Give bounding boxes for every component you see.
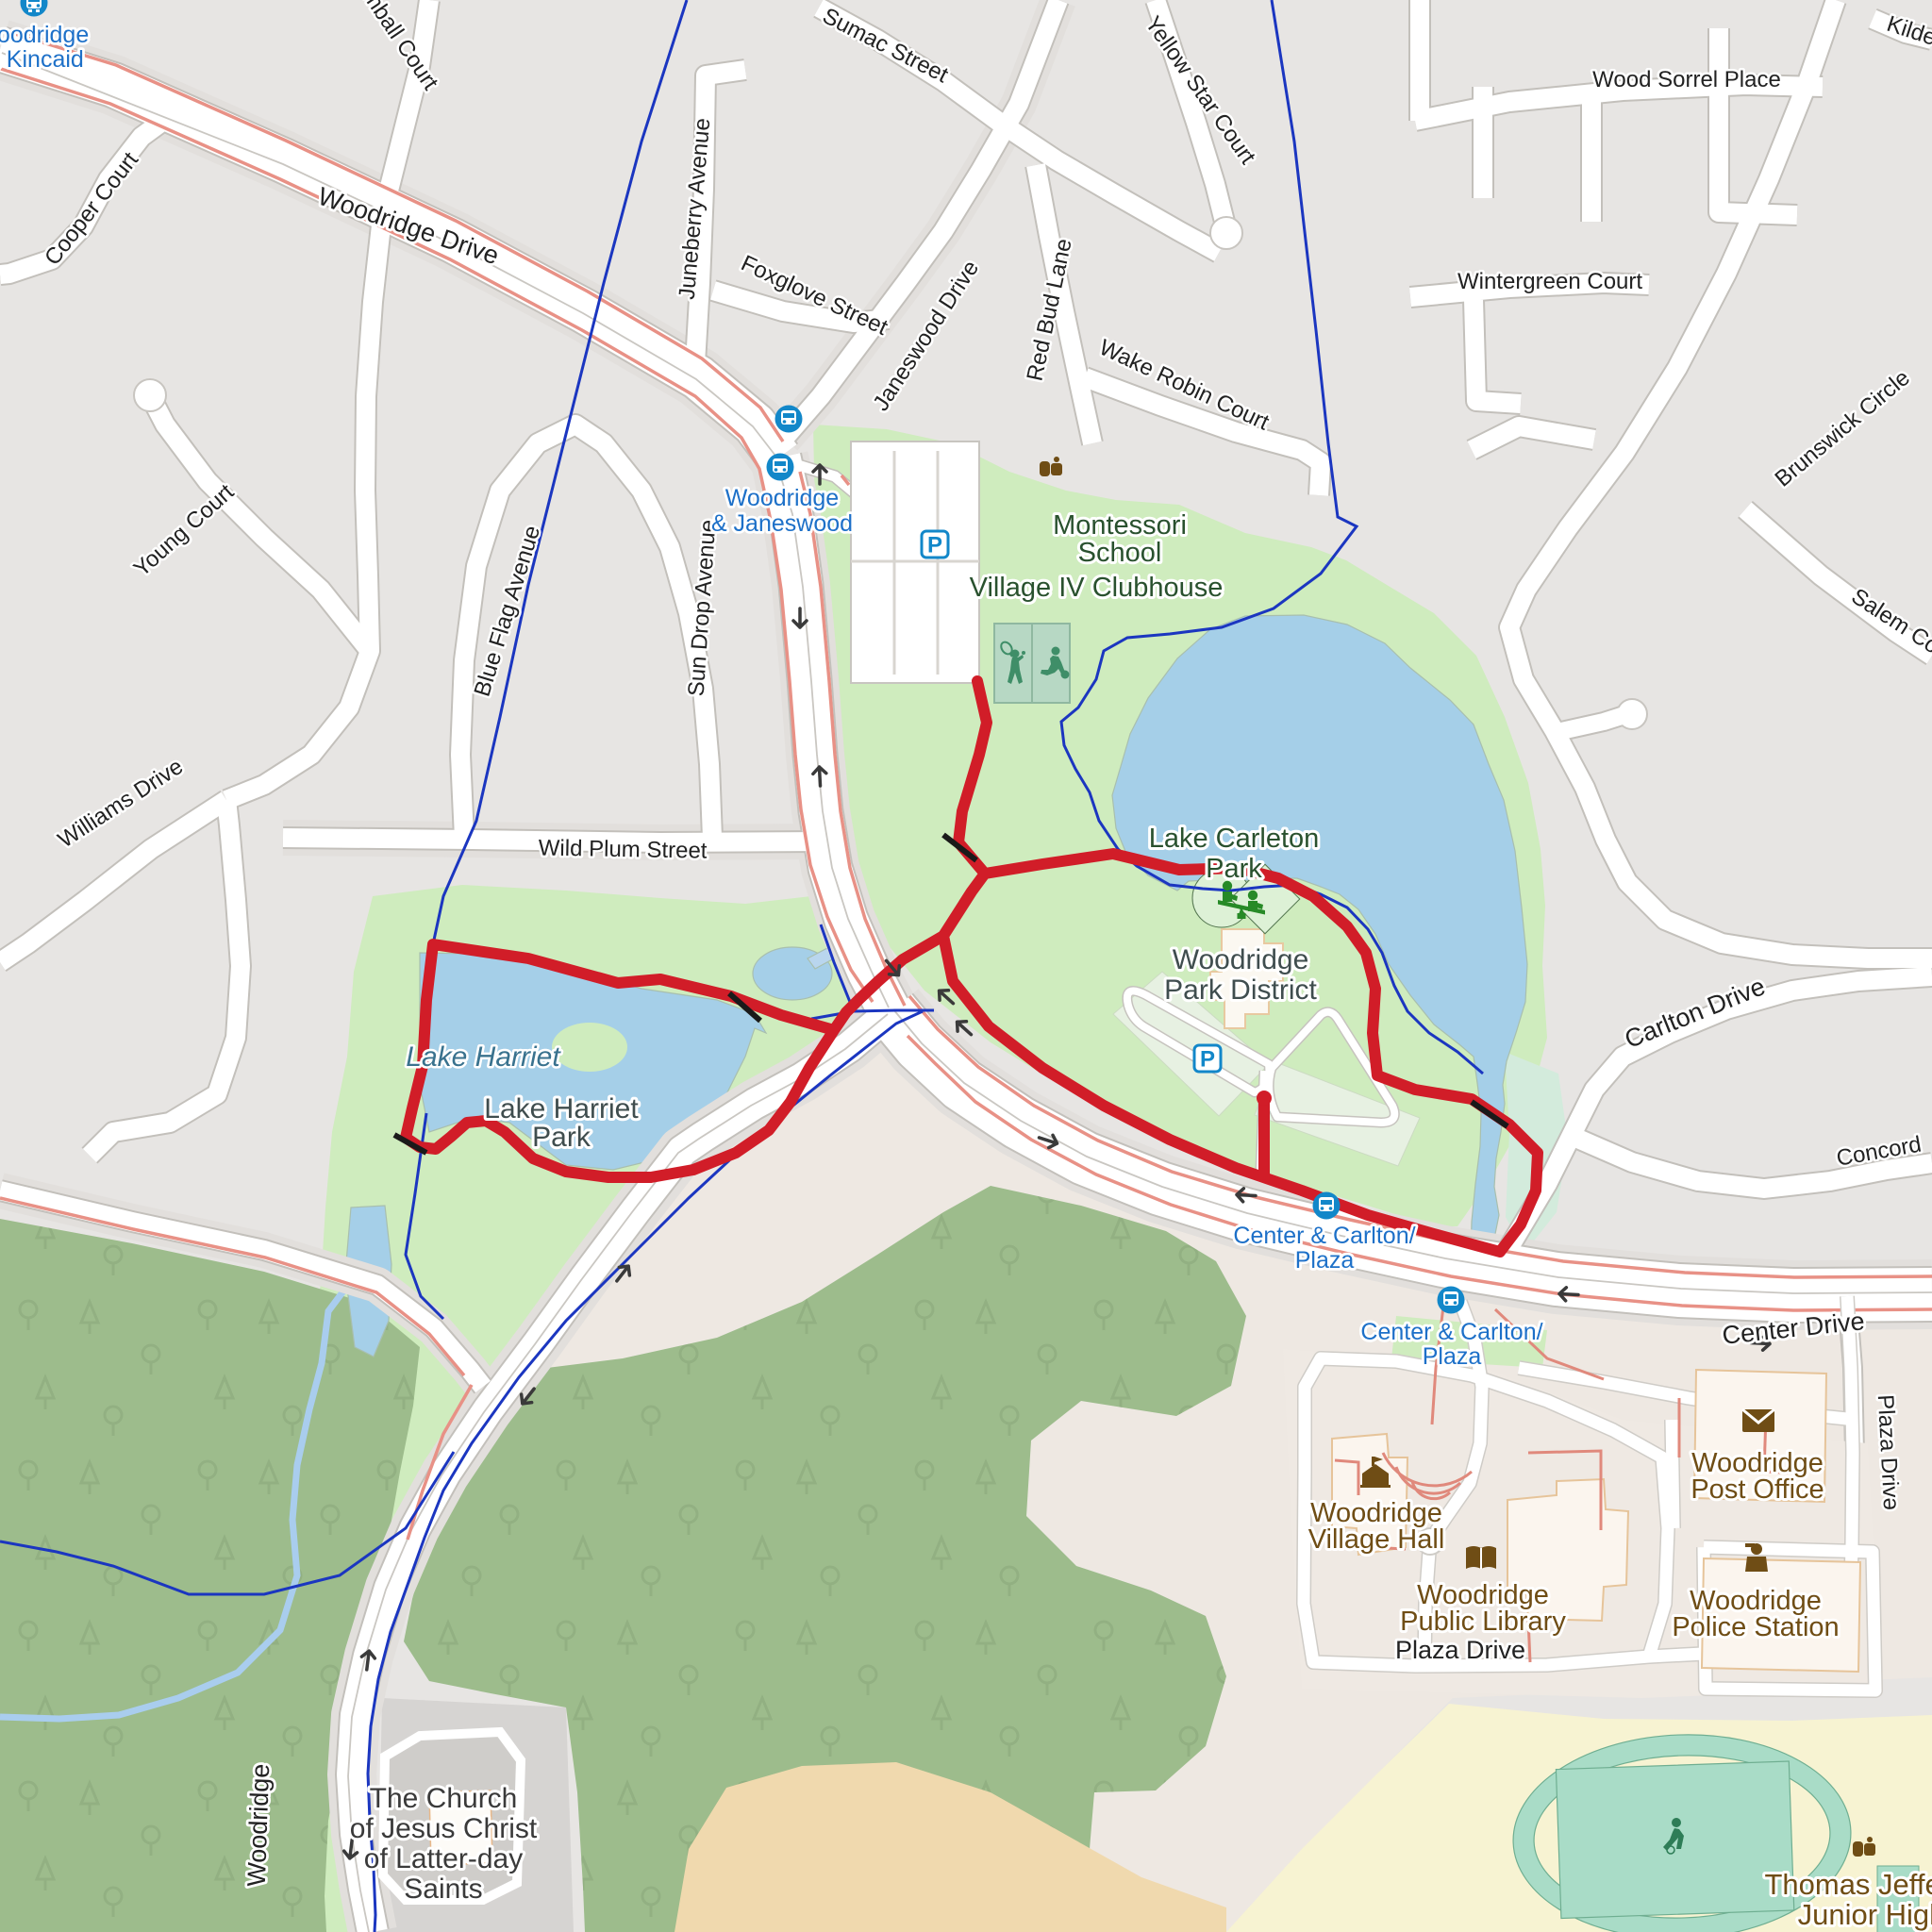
svg-text:Woodridge: Woodridge [1173, 944, 1309, 975]
svg-text:Park: Park [1206, 854, 1262, 884]
svg-text:Post Office: Post Office [1690, 1474, 1824, 1505]
svg-text:Montessori: Montessori [1053, 510, 1187, 541]
svg-text:Lake Carleton: Lake Carleton [1149, 824, 1320, 854]
svg-text:& Janeswood: & Janeswood [711, 510, 853, 537]
svg-text:Center & Carlton/: Center & Carlton/ [1360, 1319, 1542, 1345]
svg-text:P: P [927, 533, 942, 558]
svg-text:Wild Plum Street: Wild Plum Street [539, 835, 708, 863]
svg-text:Park District: Park District [1164, 974, 1317, 1006]
svg-text:of Jesus Christ: of Jesus Christ [350, 1813, 538, 1844]
svg-text:P: P [1200, 1047, 1215, 1073]
svg-text:Woodridge: Woodridge [0, 22, 89, 48]
svg-text:& Kincaid: & Kincaid [0, 46, 84, 73]
svg-text:Park: Park [532, 1122, 591, 1153]
svg-text:Public Library: Public Library [1400, 1607, 1566, 1637]
svg-text:Woodridge: Woodridge [242, 1763, 275, 1887]
svg-text:Police Station: Police Station [1672, 1612, 1839, 1642]
svg-text:Wintergreen Court: Wintergreen Court [1457, 269, 1642, 294]
svg-text:Lake Harriet: Lake Harriet [406, 1041, 561, 1073]
svg-text:Plaza: Plaza [1295, 1247, 1355, 1274]
svg-text:Wood Sorrel Place: Wood Sorrel Place [1592, 67, 1781, 92]
svg-text:School: School [1078, 538, 1162, 568]
svg-text:Village Hall: Village Hall [1308, 1524, 1445, 1555]
svg-text:Woodridge: Woodridge [725, 485, 839, 511]
svg-text:Center & Carlton/: Center & Carlton/ [1233, 1223, 1415, 1249]
svg-text:Village IV Clubhouse: Village IV Clubhouse [970, 573, 1224, 603]
svg-text:The Church: The Church [370, 1783, 518, 1814]
svg-text:Saints: Saints [404, 1874, 482, 1905]
svg-text:Junior High: Junior High [1798, 1898, 1932, 1931]
svg-text:of Latter-day: of Latter-day [364, 1843, 523, 1874]
svg-text:Lake Harriet: Lake Harriet [484, 1093, 639, 1124]
svg-text:Plaza: Plaza [1423, 1343, 1482, 1370]
svg-text:Thomas Jeffers: Thomas Jeffers [1764, 1868, 1932, 1901]
svg-text:Plaza Drive: Plaza Drive [1395, 1636, 1525, 1664]
